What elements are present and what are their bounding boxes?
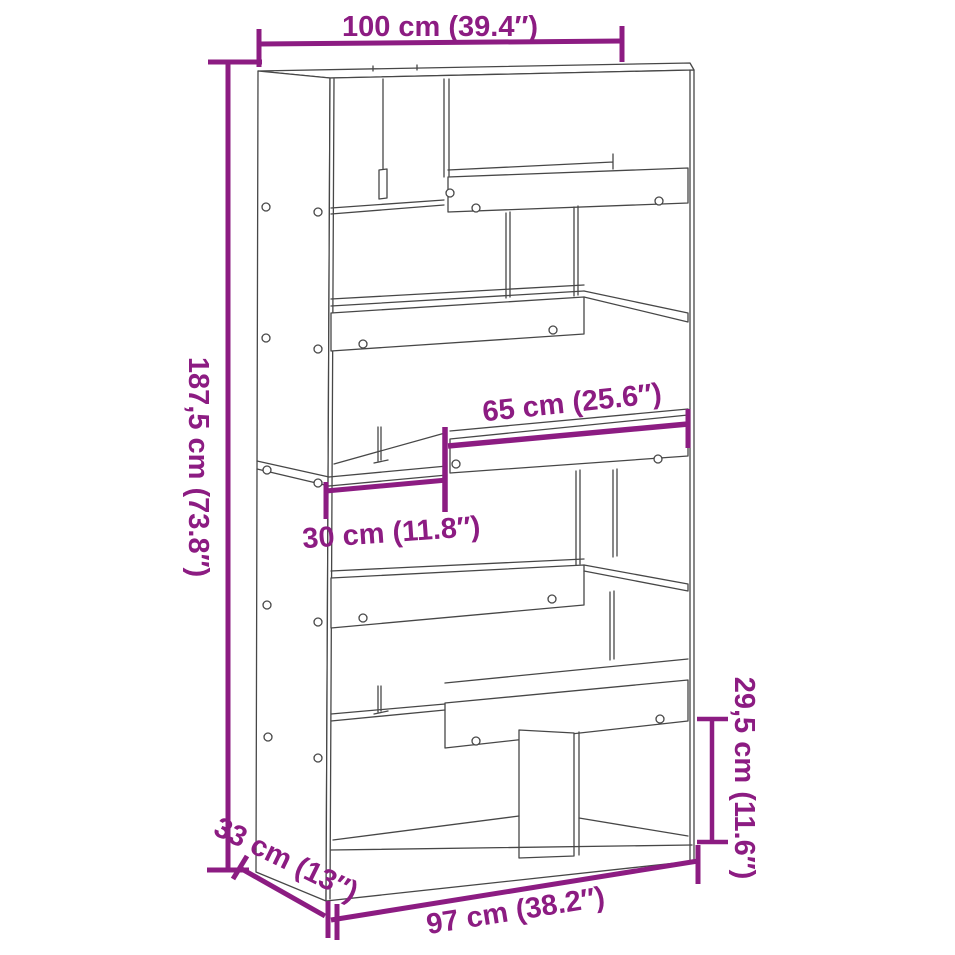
screw-hole bbox=[472, 204, 480, 212]
screw-hole bbox=[654, 455, 662, 463]
bookcase-drawing bbox=[256, 63, 694, 901]
bottom-divider bbox=[519, 730, 574, 858]
pin-hole bbox=[264, 733, 272, 741]
dimension-height-label: 187,5 cm (73.8″) bbox=[182, 357, 214, 577]
screw-hole bbox=[472, 737, 480, 745]
screw-hole bbox=[446, 189, 454, 197]
pin-hole bbox=[314, 208, 322, 216]
pin-hole bbox=[263, 466, 271, 474]
pin-hole bbox=[263, 601, 271, 609]
pin-hole bbox=[314, 479, 322, 487]
pin-hole bbox=[262, 334, 270, 342]
screw-hole bbox=[656, 715, 664, 723]
screw-hole bbox=[359, 614, 367, 622]
dimension-height: 187,5 cm (73.8″) bbox=[182, 62, 262, 871]
screw-hole bbox=[548, 595, 556, 603]
screw-hole bbox=[452, 460, 460, 468]
dimension-width: 100 cm (39.4″) bbox=[259, 11, 622, 67]
pin-hole bbox=[262, 203, 270, 211]
product-dimension-diagram: 100 cm (39.4″) 187,5 cm (73.8″) 65 cm (2… bbox=[0, 0, 955, 955]
bookcase-dimension-drawing: 100 cm (39.4″) 187,5 cm (73.8″) 65 cm (2… bbox=[0, 0, 955, 955]
pin-hole bbox=[314, 754, 322, 762]
dimension-width-label: 100 cm (39.4″) bbox=[342, 11, 538, 43]
screw-hole bbox=[655, 197, 663, 205]
screw-hole bbox=[549, 326, 557, 334]
dimension-compartment-height: 29,5 cm (11.6″) bbox=[697, 677, 760, 880]
mini-divider-row1-foot bbox=[379, 169, 387, 199]
pin-hole bbox=[314, 618, 322, 626]
pin-hole bbox=[314, 345, 322, 353]
dimension-compartment-height-label: 29,5 cm (11.6″) bbox=[728, 677, 760, 880]
screw-hole bbox=[359, 340, 367, 348]
